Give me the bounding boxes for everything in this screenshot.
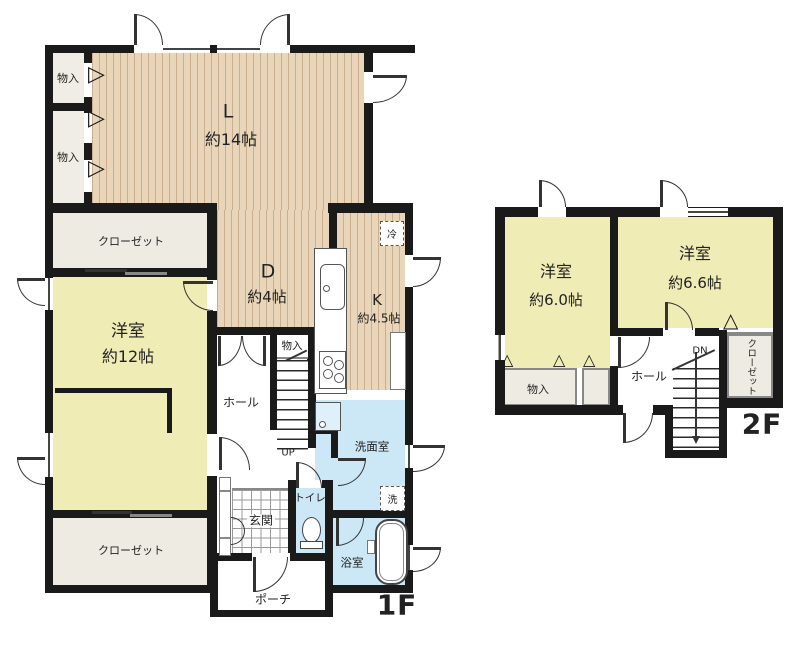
room-label-western-right: 洋室 [679, 245, 711, 263]
door-opening [660, 207, 688, 217]
room-label-western-left: 洋室 [540, 263, 572, 281]
folding-door-icon: △ [723, 310, 738, 330]
floorplan-2f: △ △ △ △ 洋室 約6.0帖 洋室 約6.6帖 物入 ホール DN クローゼ… [0, 0, 800, 646]
floorplan-canvas: ▷ ▷ ▷ [0, 0, 800, 646]
floor-label-2f: 2F [742, 410, 783, 441]
window-swing-arc [660, 180, 688, 207]
room-size-western-left: 約6.0帖 [529, 292, 583, 309]
wall [719, 330, 727, 458]
label-closet-2f: クローゼット [745, 339, 755, 396]
wall [773, 207, 783, 408]
room-size-western-right: 約6.6帖 [668, 275, 722, 292]
folding-door-icon: △ [553, 352, 565, 368]
door-opening [538, 207, 566, 217]
storage-2f-small-floor [582, 368, 610, 406]
door-swing-arc [618, 337, 650, 368]
wall [495, 207, 505, 415]
wall [719, 398, 783, 408]
western-right-floor [618, 217, 773, 328]
door-swing-arc [623, 413, 653, 443]
door-opening [610, 336, 618, 366]
window-swing-arc [539, 180, 566, 207]
label-storage-2f: 物入 [527, 384, 549, 396]
wall [610, 207, 618, 405]
window [688, 208, 728, 216]
label-dn: DN [692, 346, 707, 357]
folding-door-icon: △ [583, 352, 595, 368]
closet-2f-edge [727, 332, 773, 334]
stair-arrow-icon [692, 436, 700, 444]
folding-door-icon: △ [501, 352, 513, 368]
stair-direction-line [695, 352, 697, 437]
wall [665, 450, 727, 458]
label-hall-2f: ホール [631, 370, 667, 383]
